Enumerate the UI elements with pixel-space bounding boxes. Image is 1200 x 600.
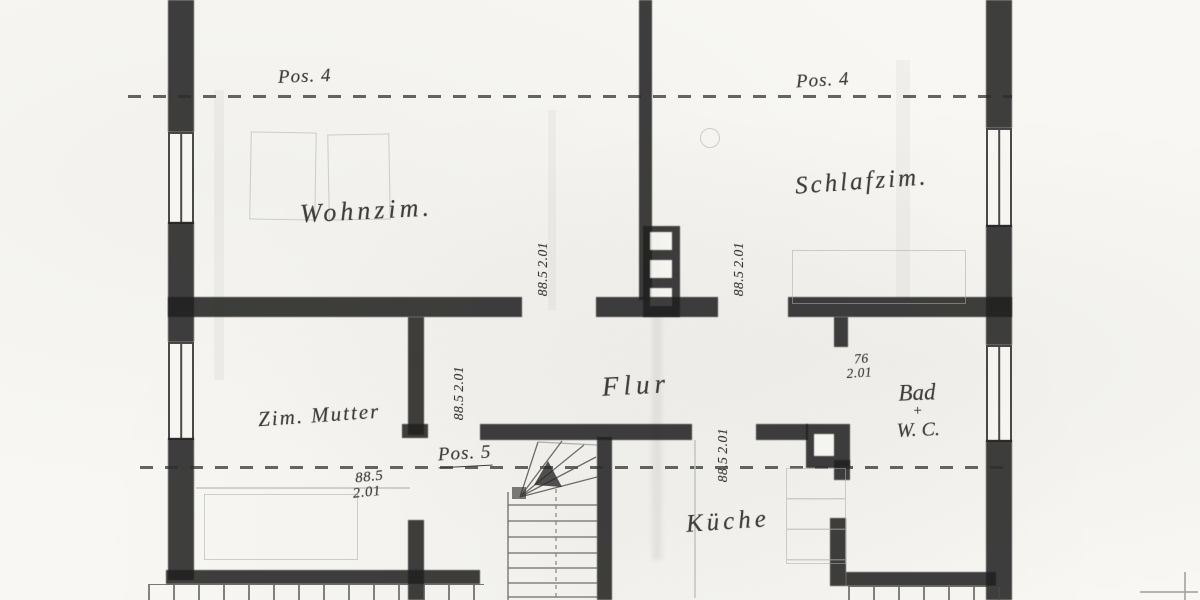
room-label-bath: Bad + W. C. <box>895 380 940 441</box>
bath-label-line2: + <box>912 404 923 420</box>
staircase <box>504 437 614 600</box>
dim-bath-door: 76 2.01 <box>851 351 872 380</box>
room-label-living: Wohnzim. <box>299 193 433 230</box>
scan-mark-corner <box>1184 572 1186 600</box>
kitchen-counter <box>786 468 846 564</box>
window-right-upper <box>986 128 1012 227</box>
wall-right-middle <box>986 225 1012 345</box>
dim-width: 88.5 <box>452 395 466 421</box>
scan-mark-corner <box>1140 591 1198 593</box>
wall-mother-door-cap <box>402 424 428 438</box>
dim-living-door: 88.5 2.01 <box>516 262 570 276</box>
furniture-lower-left <box>204 494 358 560</box>
dim-kitchen-door: 88.5 2.01 <box>696 448 750 462</box>
dim-height: 2.01 <box>716 428 730 454</box>
dim-mother-door: 88.5 2.01 <box>432 386 486 400</box>
wall-right-top <box>986 0 1012 128</box>
wall-left-top <box>168 0 194 132</box>
wall-bath-door-stub <box>834 317 848 347</box>
dim-width: 88.5 <box>716 457 730 483</box>
label-pos5: Pos. 5 <box>437 442 492 469</box>
stair-newel <box>512 487 526 499</box>
wall-middle-horizontal-center <box>596 297 718 317</box>
sill-hatch-right <box>848 586 1006 600</box>
wall-middle-horizontal-left <box>168 297 522 317</box>
room-label-kitchen: Küche <box>685 505 771 539</box>
dim-height: 2.01 <box>352 484 382 502</box>
dim-height: 2.01 <box>536 242 550 268</box>
dim-pos5-door: 88.5 2.01 <box>354 469 385 502</box>
wall-bottom-right <box>846 572 996 586</box>
wall-left-middle <box>168 222 194 342</box>
room-label-hall: Flur <box>601 368 671 403</box>
dim-height: 2.01 <box>452 366 466 392</box>
furniture-bed <box>792 250 966 304</box>
wall-left-bottom <box>168 438 194 580</box>
bath-label-line1: Bad <box>898 380 936 405</box>
room-label-bedroom: Schlafzim. <box>794 163 929 200</box>
window-left-upper <box>168 132 194 224</box>
dim-height: 2.01 <box>846 365 873 381</box>
sill-hatch-left <box>148 584 484 600</box>
bath-label-line3: W. C. <box>896 419 940 441</box>
wall-mother-room-divider <box>408 317 424 435</box>
stair-direction-arrow <box>534 461 562 487</box>
dim-width: 88.5 <box>732 271 746 297</box>
dim-height: 2.01 <box>732 242 746 268</box>
label-pos4-right: Pos. 4 <box>795 69 850 94</box>
wall-hall-bottom-right <box>756 424 808 440</box>
window-right-lower <box>986 345 1012 442</box>
chimney-flue <box>814 434 834 456</box>
window-left-lower <box>168 342 194 440</box>
wall-bottom-left <box>166 570 480 584</box>
scan-streak <box>214 90 224 380</box>
room-label-mother: Zim. Mutter <box>257 399 381 432</box>
dim-bedroom-door: 88.5 2.01 <box>712 262 766 276</box>
floor-plan-scan: Pos. 4 Pos. 4 Pos. 5 Wohnzim. Schlafzim.… <box>0 0 1200 600</box>
section-line-pos4 <box>128 95 1012 98</box>
fixture-circle <box>700 128 720 148</box>
dim-width: 88.5 <box>536 271 550 297</box>
label-pos4-left: Pos. 4 <box>278 65 332 89</box>
chimney-flue <box>650 260 672 278</box>
chimney-flue <box>650 232 672 250</box>
